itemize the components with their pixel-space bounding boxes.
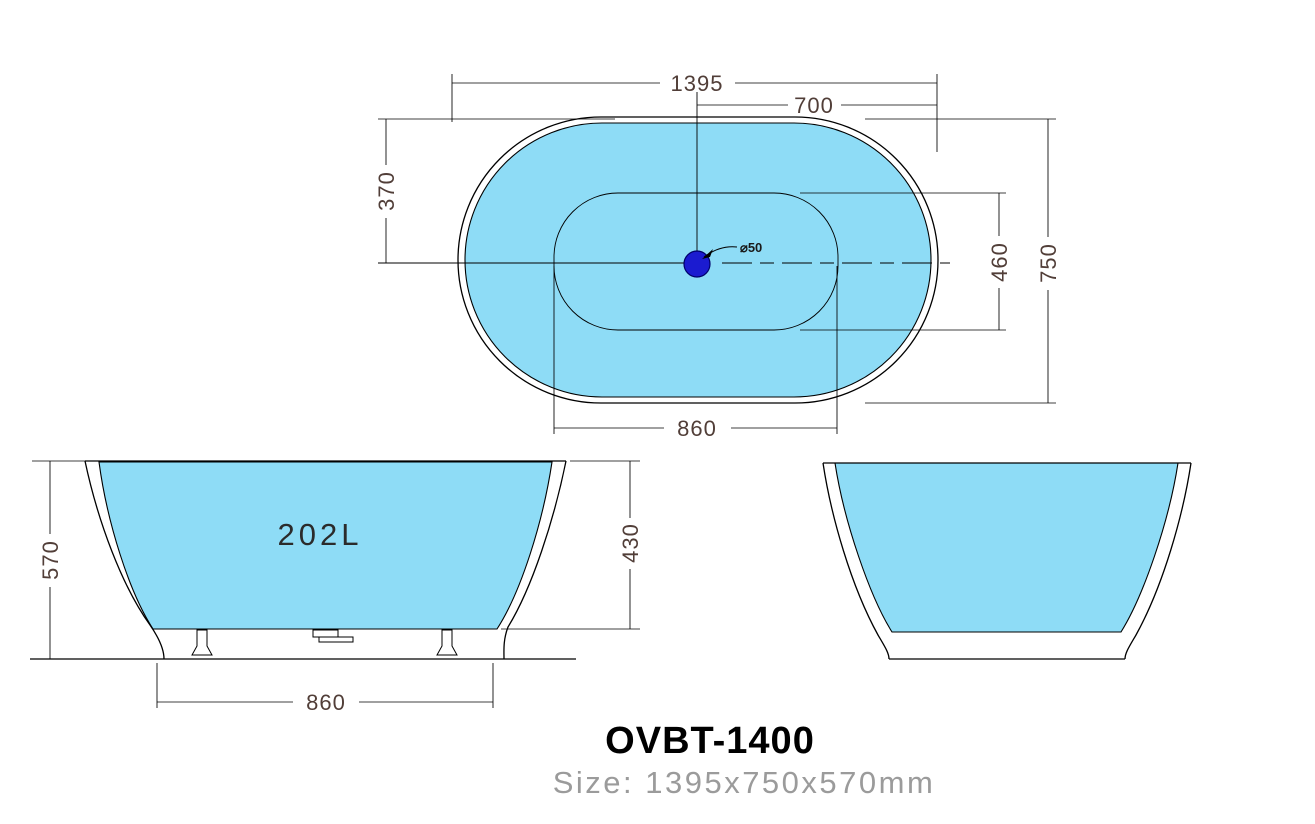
- dim-overall-height: 570: [38, 540, 63, 580]
- dim-basin-width: 460: [987, 242, 1012, 282]
- drain-hole: [684, 251, 710, 277]
- dim-overall-width: 750: [1036, 243, 1061, 283]
- capacity-label: 202L: [278, 517, 363, 552]
- drawing-sheet: ⌀50 1395 700 370 460 750 860: [0, 0, 1315, 824]
- top-view: ⌀50 1395 700 370 460 750 860: [374, 71, 1061, 441]
- dim-overall-length: 1395: [671, 71, 724, 96]
- dim-inner-depth: 430: [618, 523, 643, 563]
- model-number: OVBT-1400: [605, 720, 815, 762]
- dim-basin-length: 860: [677, 416, 717, 441]
- bathtub-technical-drawing: ⌀50 1395 700 370 460 750 860: [0, 0, 1315, 824]
- dim-base-length: 860: [306, 690, 346, 715]
- tub-inner-fill: [835, 463, 1178, 632]
- dim-center-to-end: 700: [794, 93, 834, 118]
- side-view: [823, 463, 1191, 659]
- tub-foot-right: [437, 630, 457, 655]
- tub-foot-left: [192, 630, 212, 655]
- front-view: 202L 570 430 860: [30, 461, 643, 715]
- title-block: OVBT-1400 Size: 1395x750x570mm: [553, 720, 936, 800]
- waste-fitting-body: [313, 630, 338, 637]
- size-caption: Size: 1395x750x570mm: [553, 765, 936, 800]
- waste-fitting-outlet: [319, 637, 353, 642]
- drain-diameter-label: ⌀50: [740, 240, 762, 255]
- dim-rim-to-centerline: 370: [374, 171, 399, 211]
